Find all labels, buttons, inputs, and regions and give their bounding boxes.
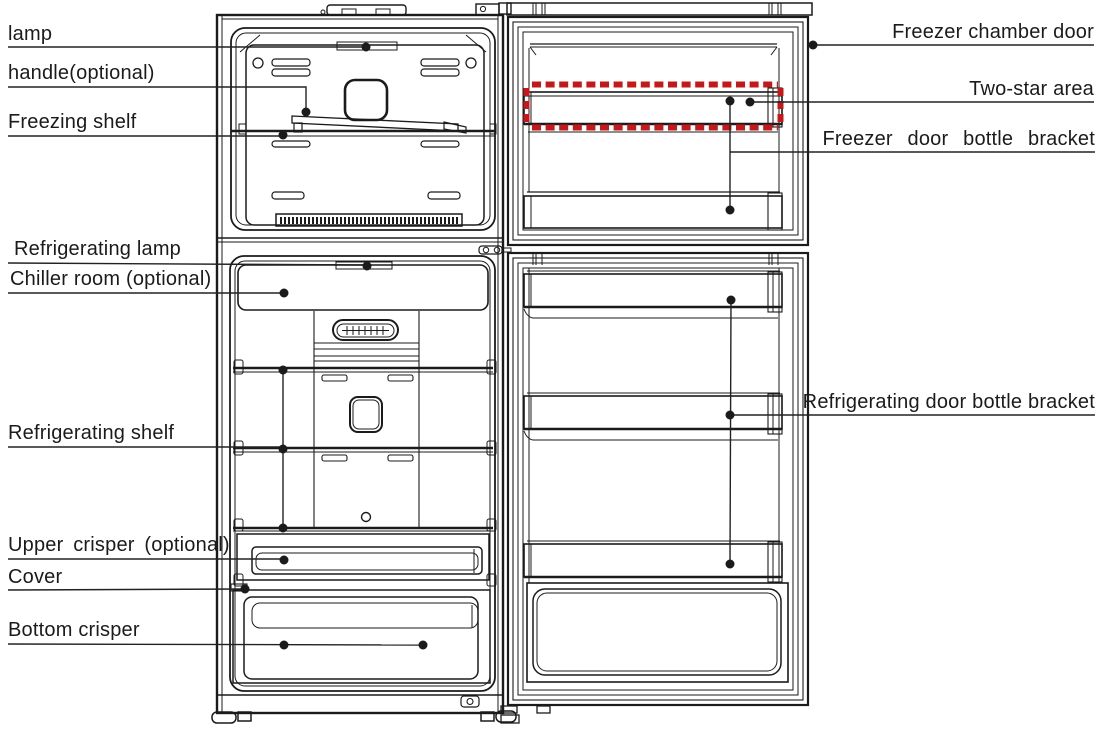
label-bottom-crisper: Bottom crisper xyxy=(8,619,140,642)
label-handle-optional: handle(optional) xyxy=(8,62,155,85)
door-bottle-bracket-3 xyxy=(524,541,782,582)
freezer-door-bottle-bracket-bottom xyxy=(524,192,782,230)
door-bottle-bracket-2 xyxy=(524,393,782,440)
label-refrigerating-door-bottle-bracket: Refrigerating door bottle bracket xyxy=(803,391,1095,414)
leader-cover xyxy=(8,589,245,590)
refrigerator-door xyxy=(501,253,808,723)
label-freezing-shelf: Freezing shelf xyxy=(8,111,136,134)
freezer-lamp-housing xyxy=(345,80,387,120)
label-refrigerating-shelf: Refrigerating shelf xyxy=(8,422,174,445)
diagram-canvas xyxy=(0,0,1098,733)
door-bottle-bracket-1 xyxy=(524,271,782,318)
label-refrigerating-lamp: Refrigerating lamp xyxy=(14,238,181,261)
leader-refrigerating-lamp xyxy=(8,263,367,265)
leader-handle xyxy=(8,87,306,111)
label-lamp: lamp xyxy=(8,23,52,46)
upper-crisper xyxy=(237,534,489,580)
bottom-crisper xyxy=(233,590,490,683)
door-bottom-bin xyxy=(527,583,788,682)
chiller-room xyxy=(238,265,488,310)
label-upper-crisper-optional: Upper crisper (optional) xyxy=(8,534,230,557)
leader-freezer-door-bottle-bracket xyxy=(730,101,1095,210)
refrigerating-chamber xyxy=(230,256,496,691)
drain-hole xyxy=(362,513,371,522)
freezer-door xyxy=(507,3,812,245)
label-chiller-room-optional: Chiller room (optional) xyxy=(10,268,211,291)
label-two-star-area: Two-star area xyxy=(969,78,1094,101)
cabinet-body xyxy=(212,3,516,723)
label-freezer-door-bottle-bracket: Freezer door bottle bracket xyxy=(822,128,1095,151)
leader-refrigerating-door-bottle-bracket xyxy=(730,300,1095,564)
label-cover: Cover xyxy=(8,566,62,589)
label-freezer-chamber-door: Freezer chamber door xyxy=(892,21,1094,44)
leader-bottom-crisper xyxy=(8,644,423,645)
two-star-area-marker xyxy=(527,85,781,128)
refrigerator-diagram-page: lamp handle(optional) Freezing shelf Ref… xyxy=(0,0,1098,733)
freezer-chamber xyxy=(231,28,496,230)
door-lamp-switch xyxy=(479,246,511,254)
